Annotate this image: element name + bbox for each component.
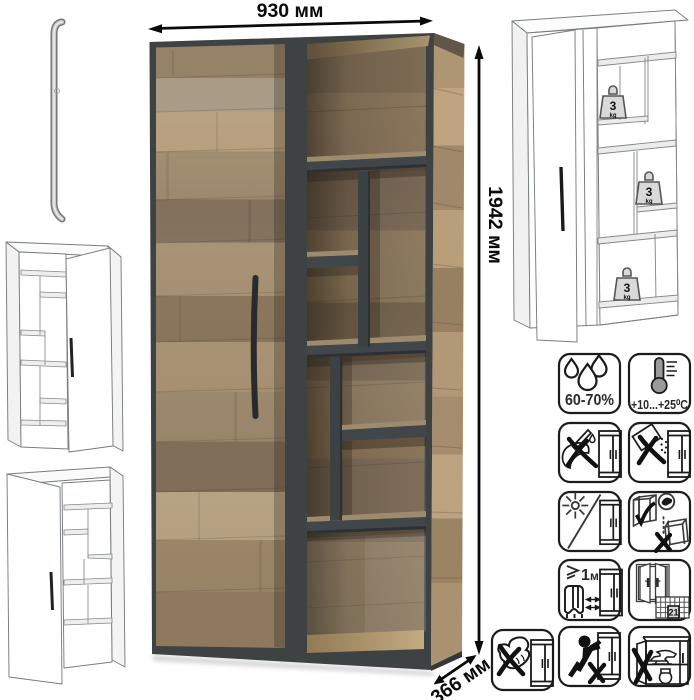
svg-text:3: 3	[610, 99, 617, 113]
svg-text:1942 мм: 1942 мм	[484, 186, 506, 264]
svg-text:3: 3	[624, 281, 631, 295]
svg-text:kg: kg	[645, 199, 652, 205]
svg-text:м: м	[590, 569, 599, 583]
svg-text:+10...+25⁰С: +10...+25⁰С	[631, 397, 688, 412]
svg-text:60-70%: 60-70%	[565, 392, 614, 409]
svg-text:3: 3	[646, 185, 653, 199]
svg-text:1: 1	[581, 567, 590, 584]
svg-text:21: 21	[668, 608, 678, 618]
svg-text:kg: kg	[609, 113, 616, 119]
svg-text:930 мм: 930 мм	[257, 0, 324, 22]
svg-text:kg: kg	[623, 295, 630, 301]
